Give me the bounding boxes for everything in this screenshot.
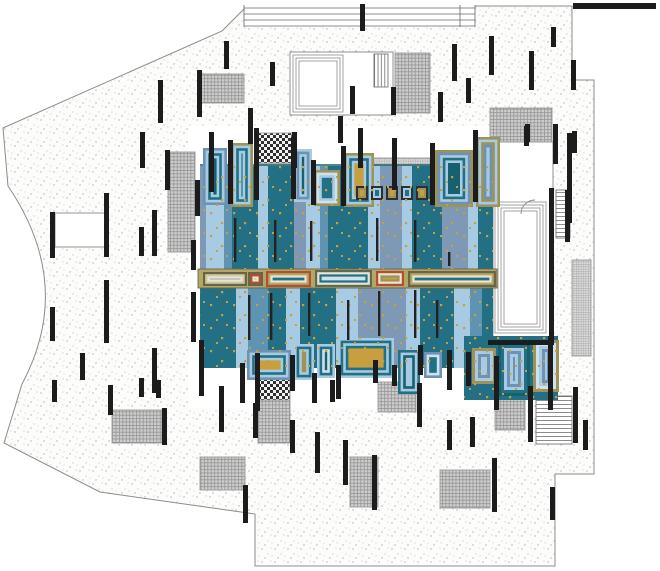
lane-line (347, 300, 349, 340)
lane-line (310, 221, 312, 261)
wall-bar (338, 116, 343, 143)
wall-bar (528, 386, 533, 412)
wall-bar (330, 380, 335, 402)
wall-bar (373, 360, 378, 383)
wall-bar (158, 80, 163, 123)
wall-bar (219, 386, 224, 432)
wall-bar (452, 44, 457, 81)
wall-bar (195, 180, 200, 216)
wall-bar (343, 440, 348, 485)
lane-line (308, 293, 310, 336)
wall-bar (152, 210, 157, 256)
hatch-block-cross (258, 400, 290, 443)
wall-bar (473, 130, 478, 202)
wall-bar (392, 138, 397, 190)
wall-bar (372, 455, 377, 510)
plan-layers (3, 3, 656, 566)
hatch-block-cross (495, 397, 525, 430)
lane-line (274, 220, 276, 262)
wall-bar (360, 4, 365, 31)
wall-bar (139, 227, 144, 256)
wall-bar (104, 193, 109, 257)
wall-bar (392, 365, 397, 386)
wall-bar (466, 78, 471, 103)
wall-bar (291, 137, 296, 199)
wall-bar (350, 86, 355, 114)
wall-bar (418, 345, 423, 375)
hatch-block-cross (168, 152, 195, 252)
wall-bar (139, 378, 144, 397)
hatch-block-cross (200, 457, 245, 490)
lane-line (436, 300, 438, 338)
wall-bar (447, 350, 452, 390)
wall-bar (243, 485, 248, 523)
hatch-block-cross (200, 74, 244, 103)
wall-bar (290, 420, 295, 453)
wall-bar (104, 280, 109, 343)
wall-bar (470, 417, 475, 447)
band-lozenge-maroon (415, 278, 490, 281)
hatch-block-cross (490, 108, 552, 142)
hatch-block-checker (258, 378, 290, 400)
wall-bar (524, 126, 529, 146)
wall-bar (430, 143, 435, 205)
wall-bar (447, 420, 452, 450)
stair-block (536, 396, 572, 444)
band-lozenge-orange (273, 278, 305, 281)
hatch-block-cross (112, 410, 162, 443)
gold-dots-overlay (464, 336, 558, 400)
wall-bar (336, 365, 341, 399)
wall-bar (199, 340, 204, 396)
wall-bar (140, 132, 145, 168)
lane-line (376, 218, 378, 261)
hatch-block-checker (258, 133, 292, 163)
wall-bar (255, 353, 260, 411)
wall-bar (108, 385, 113, 415)
wall-bar (548, 336, 553, 410)
wall-bar (466, 352, 471, 386)
wall-bar (571, 60, 576, 90)
lane-line (270, 293, 272, 340)
wall-bar (529, 51, 534, 90)
wall-bar (209, 132, 214, 192)
wall-bar (52, 380, 57, 402)
right-building (493, 142, 553, 345)
wall-bar (156, 380, 161, 398)
wall-bar (315, 432, 320, 473)
wall-bar-horizontal (573, 3, 656, 9)
lane-line (448, 252, 450, 266)
wall-bar (191, 240, 196, 270)
lane-line (414, 220, 416, 262)
wall-bar (550, 487, 555, 520)
wall-bar (489, 36, 494, 75)
planter-rect (55, 213, 108, 247)
wall-bar (391, 87, 396, 115)
wall-bar (492, 458, 497, 512)
site-plan-svg (0, 0, 660, 571)
wall-bar (240, 363, 245, 403)
wall-bar (358, 128, 363, 168)
wall-bar (312, 373, 317, 403)
wall-bar (553, 124, 558, 164)
wall-bar (248, 108, 253, 144)
wall-bar (438, 92, 443, 122)
wall-bar (290, 355, 295, 391)
band-lozenge-tealz (322, 277, 366, 281)
wall-bar (254, 128, 259, 200)
wall-bar (50, 307, 55, 341)
architectural-site-plan (0, 0, 660, 571)
wall-bar (270, 62, 275, 86)
lane-line (378, 291, 380, 336)
wall-bar (573, 387, 578, 443)
hatch-block-cross (395, 53, 430, 113)
band-lozenge-orange2 (383, 278, 398, 280)
wall-bar (583, 420, 588, 450)
hatch-block-fine (572, 260, 591, 356)
wall-bar (549, 188, 554, 345)
wall-bar (417, 383, 422, 427)
lane-line (414, 290, 416, 338)
band-lozenge-orangesq (255, 279, 257, 280)
wall-bar (80, 353, 85, 380)
wall-bar (341, 146, 346, 206)
stair-block (374, 54, 388, 87)
wall-bar (165, 150, 170, 190)
lane-line (234, 218, 236, 262)
wall-bar (311, 160, 316, 205)
wall-bar (50, 212, 55, 258)
wall-bar (565, 190, 570, 242)
wall-bar (191, 292, 196, 342)
lane-line (248, 295, 250, 340)
wall-bar (228, 140, 233, 204)
band-lozenge-olive (210, 279, 241, 280)
wall-bar (224, 41, 229, 69)
wall-bar (162, 408, 167, 445)
wall-bar (197, 70, 202, 117)
wall-bar (551, 27, 556, 47)
wall-bar-horizontal (488, 340, 554, 345)
wall-bar (494, 356, 499, 410)
wall-bar (572, 131, 577, 153)
hatch-block-cross (440, 470, 490, 508)
